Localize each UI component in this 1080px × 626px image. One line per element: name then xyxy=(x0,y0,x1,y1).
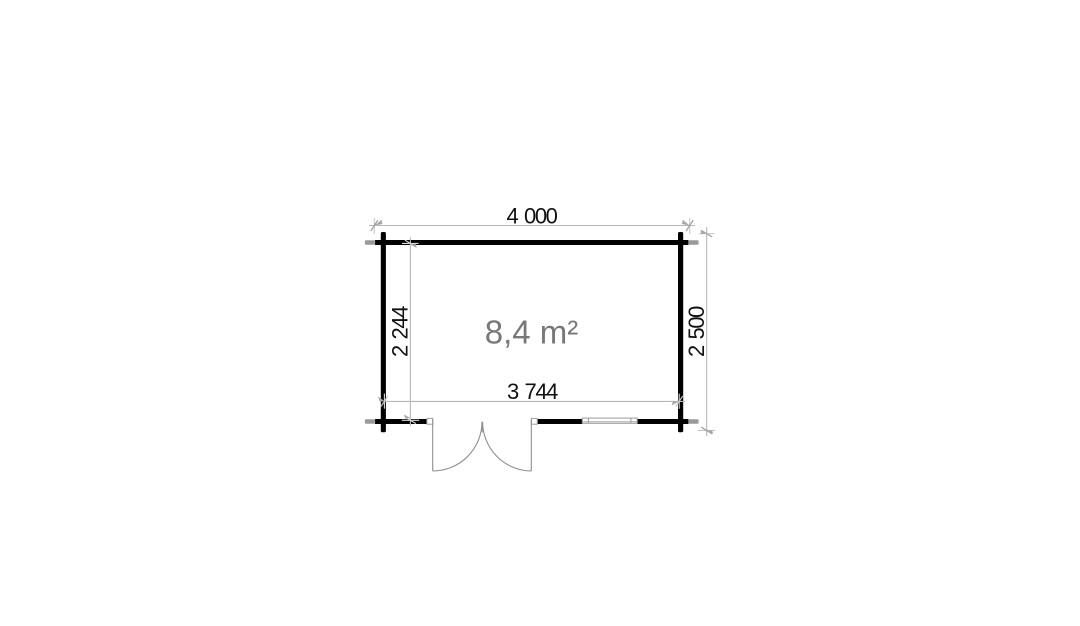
svg-text:3 744: 3 744 xyxy=(507,379,558,404)
svg-text:8,4 m²: 8,4 m² xyxy=(485,313,579,350)
svg-text:4 000: 4 000 xyxy=(506,203,557,228)
svg-text:2 244: 2 244 xyxy=(388,306,413,357)
svg-text:2 500: 2 500 xyxy=(684,306,709,357)
